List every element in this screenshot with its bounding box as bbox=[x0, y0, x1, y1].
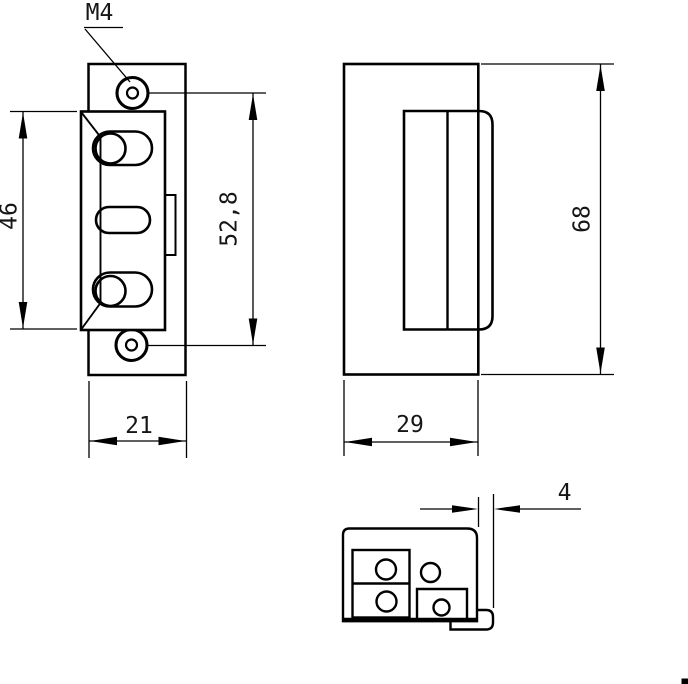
side-view bbox=[344, 64, 493, 375]
dim-front-body-height: 46 bbox=[0, 112, 77, 330]
dim-52-8-label: 52,8 bbox=[217, 191, 243, 246]
arrow-up-icon bbox=[249, 94, 258, 120]
dim-4-label: 4 bbox=[558, 480, 572, 506]
arrow-down-icon bbox=[249, 319, 258, 345]
thread-label: M4 bbox=[86, 0, 114, 26]
arrow-left-icon bbox=[345, 438, 372, 447]
corner-artifact bbox=[682, 679, 688, 684]
arrow-right-icon bbox=[450, 438, 477, 447]
dim-side-depth: 29 bbox=[344, 380, 478, 456]
arrow-up-icon bbox=[596, 65, 605, 91]
arrow-down-icon bbox=[596, 348, 605, 374]
arrow-right-icon bbox=[159, 437, 186, 446]
dim-21-label: 21 bbox=[125, 413, 153, 439]
dim-front-faceplate-width: 21 bbox=[89, 381, 187, 458]
arrow-left-icon bbox=[90, 437, 117, 446]
arrow-left-icon bbox=[494, 505, 520, 513]
dim-29-label: 29 bbox=[396, 412, 424, 438]
dim-68-label: 68 bbox=[570, 205, 596, 233]
arrow-right-icon bbox=[452, 505, 478, 513]
technical-drawing-canvas: M4 46 52,8 21 bbox=[0, 0, 688, 684]
arrow-down-icon bbox=[19, 302, 28, 328]
front-view bbox=[81, 64, 186, 375]
arrow-up-icon bbox=[19, 113, 28, 139]
dim-side-height: 68 bbox=[481, 64, 614, 375]
dim-46-label: 46 bbox=[0, 202, 23, 230]
bottom-view bbox=[342, 529, 493, 630]
